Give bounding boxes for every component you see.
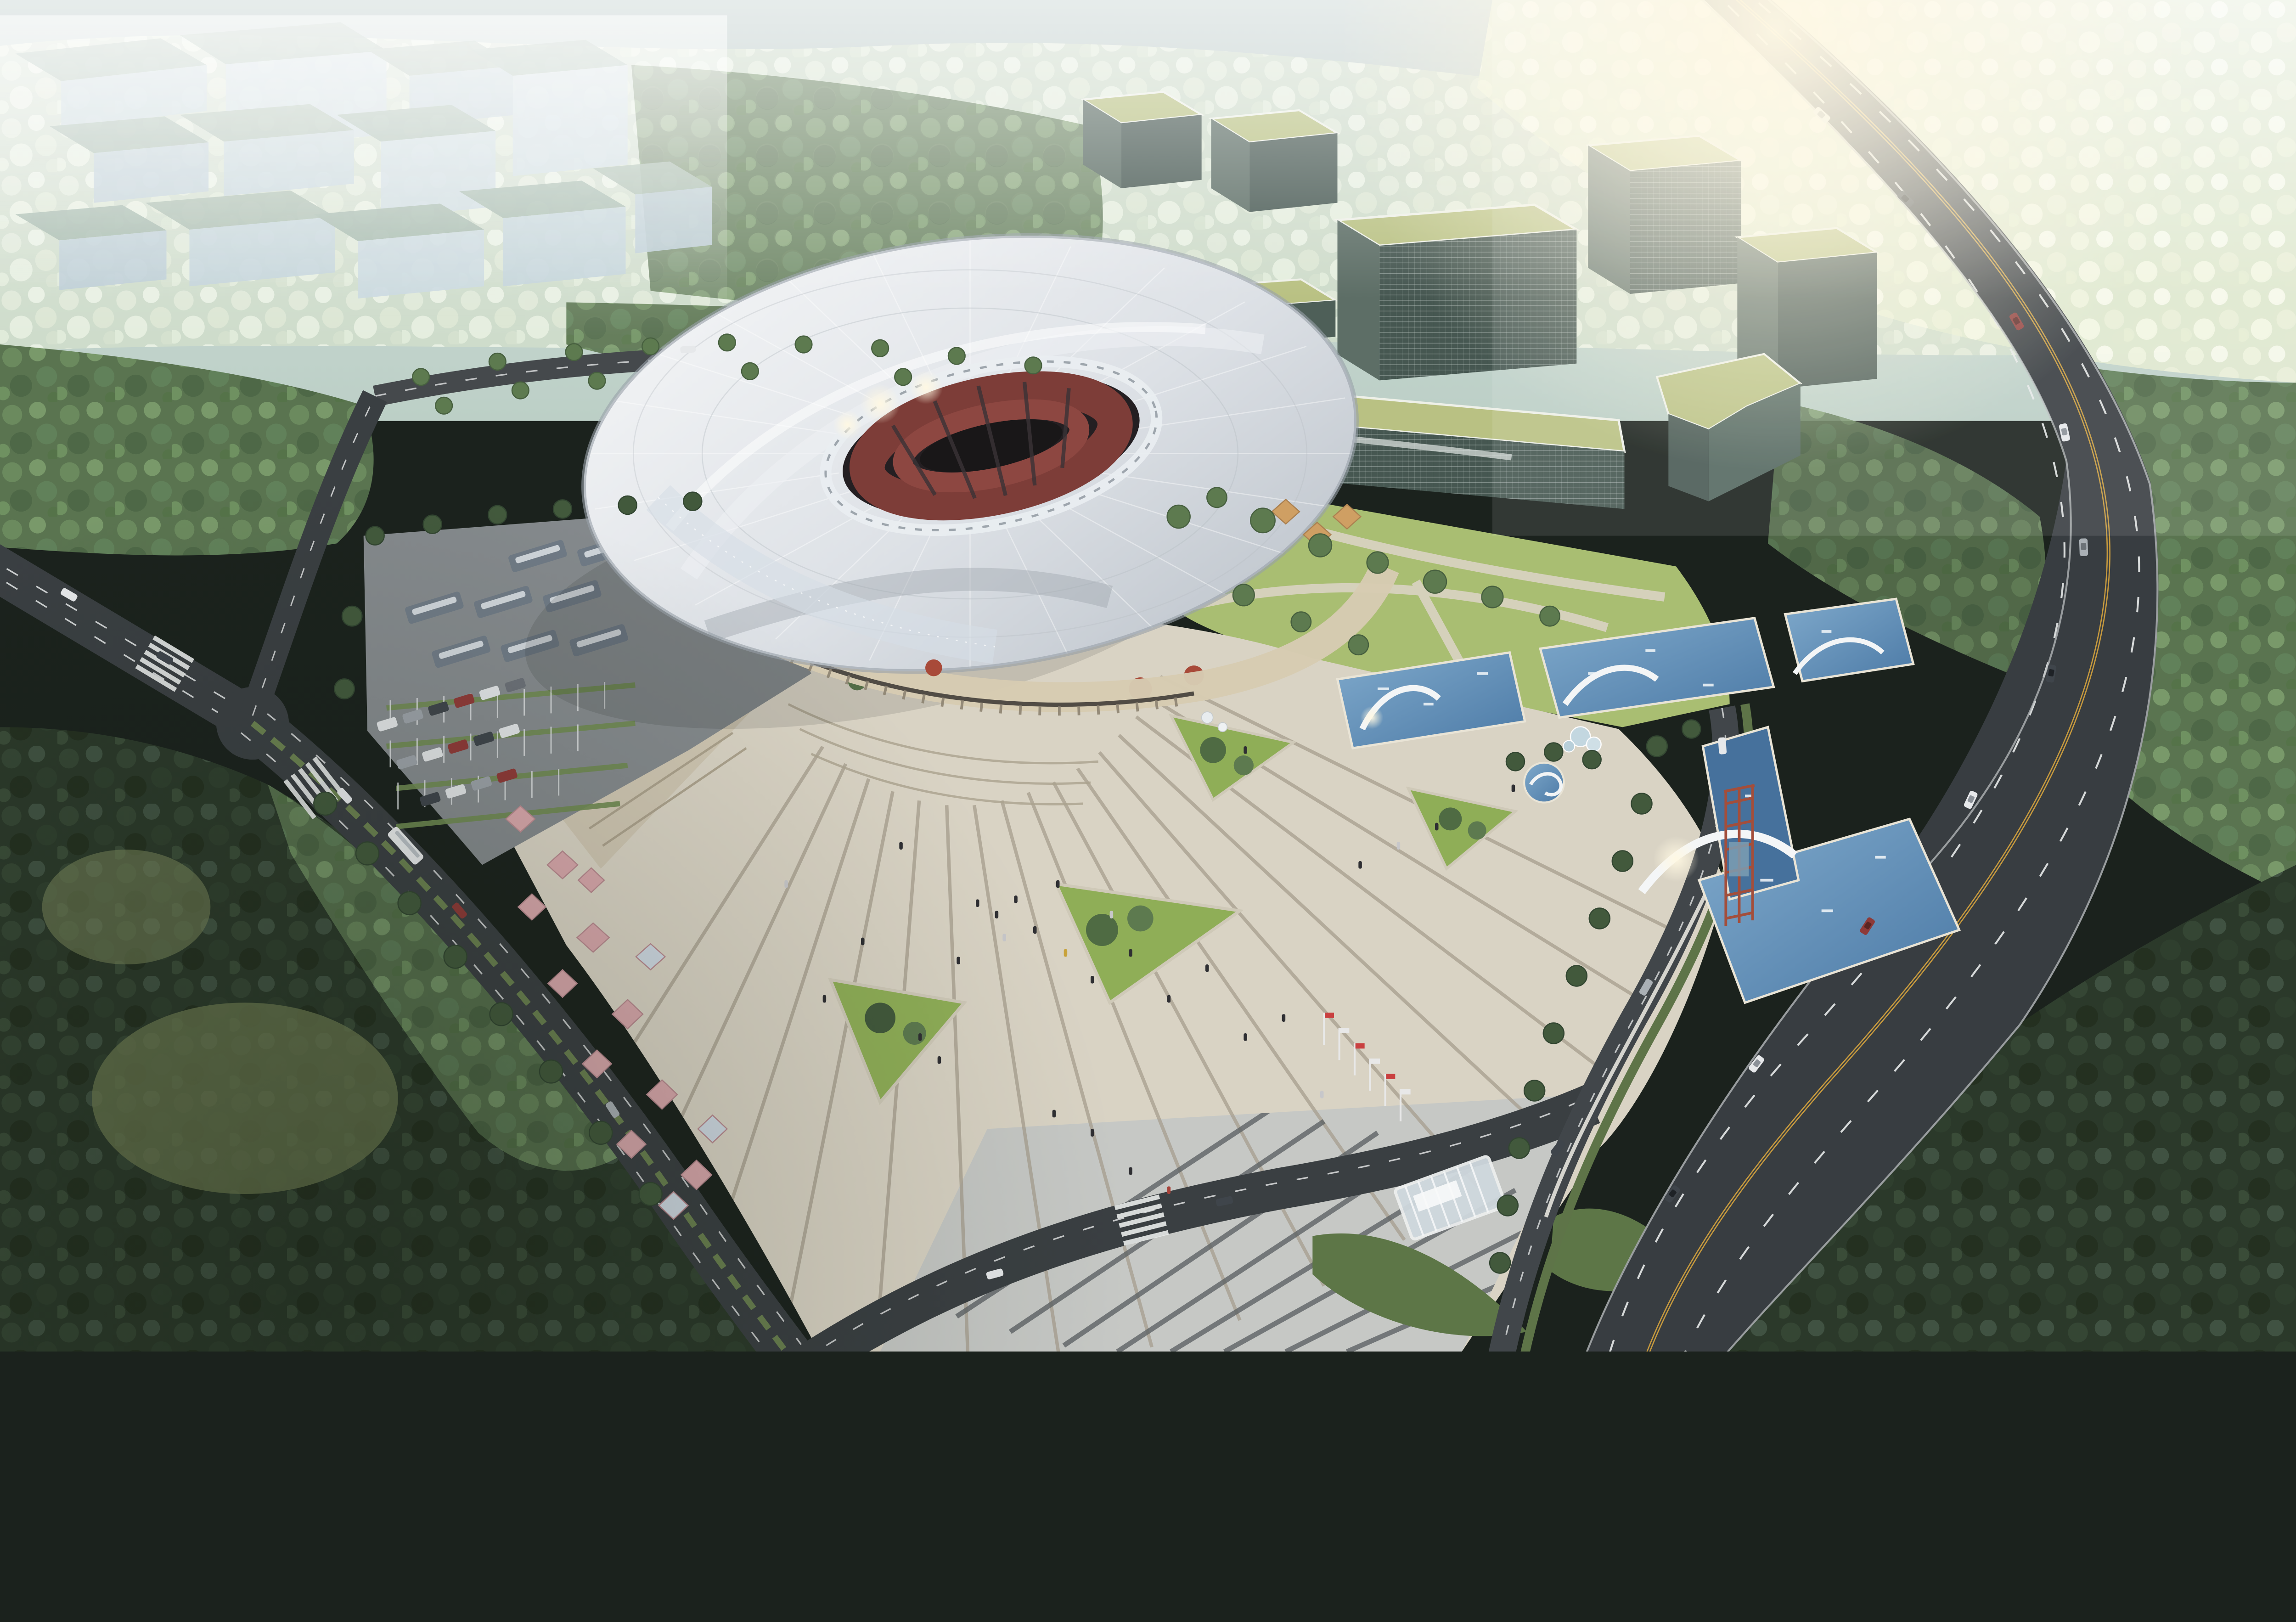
sunlit-bleach [1492,0,2296,536]
bowl-sun-glint [833,410,862,439]
bowl-sun-glint [909,371,943,404]
red-tree [925,659,942,676]
tower-glass-lift [1729,842,1749,876]
bowl-sun-glint [860,384,900,424]
aerial-rendering [0,0,2296,1352]
rendering-stage [0,0,2296,1352]
white-umbrella [1218,722,1227,732]
arch-sun-glint [1653,836,1699,882]
white-umbrella [1202,712,1213,723]
